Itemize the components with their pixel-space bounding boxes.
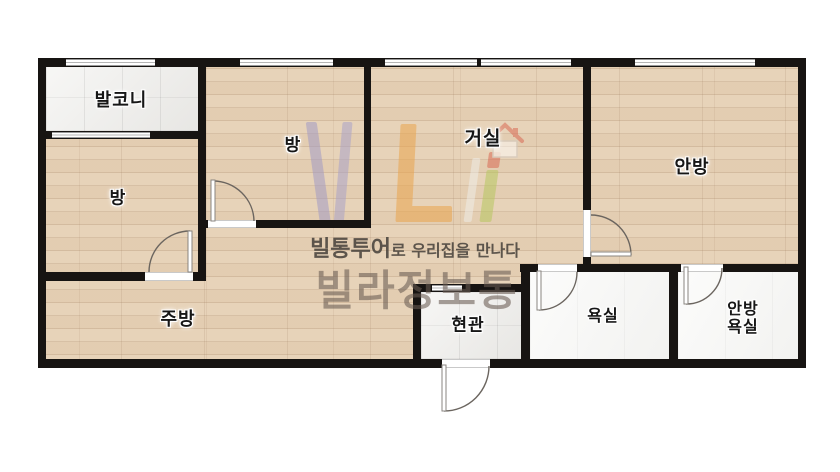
room-label-master-bath: 안방 욕실	[727, 300, 758, 336]
door-leaf	[211, 180, 215, 221]
room-label-room-left: 방	[110, 189, 127, 208]
room-label-room-middle: 방	[285, 136, 302, 155]
door-leaf	[442, 365, 446, 411]
floorplan: 빌통투어로 우리집을 만나다 빌라정보통 발코니 방 방 거실 안방 주방 현관…	[0, 0, 840, 472]
door-arc	[444, 366, 489, 411]
room-label-master: 안방	[674, 158, 709, 178]
room-label-living: 거실	[465, 128, 502, 149]
door-leaf	[591, 252, 631, 256]
door-arc	[686, 268, 722, 304]
room-label-master-bath-line1: 안방	[727, 300, 758, 318]
door-arc	[591, 215, 631, 255]
door-leaf	[684, 267, 688, 304]
room-label-kitchen: 주방	[160, 310, 195, 330]
room-label-entrance: 현관	[451, 316, 484, 335]
room-label-balcony: 발코니	[95, 91, 148, 111]
door-swings-layer	[0, 0, 840, 472]
door-leaf	[188, 231, 192, 272]
door-arc	[213, 181, 254, 221]
room-label-master-bath-line2: 욕실	[727, 318, 758, 336]
door-arc	[149, 231, 190, 272]
door-leaf	[537, 271, 541, 310]
door-arc	[539, 272, 577, 310]
room-label-bath: 욕실	[587, 307, 618, 325]
